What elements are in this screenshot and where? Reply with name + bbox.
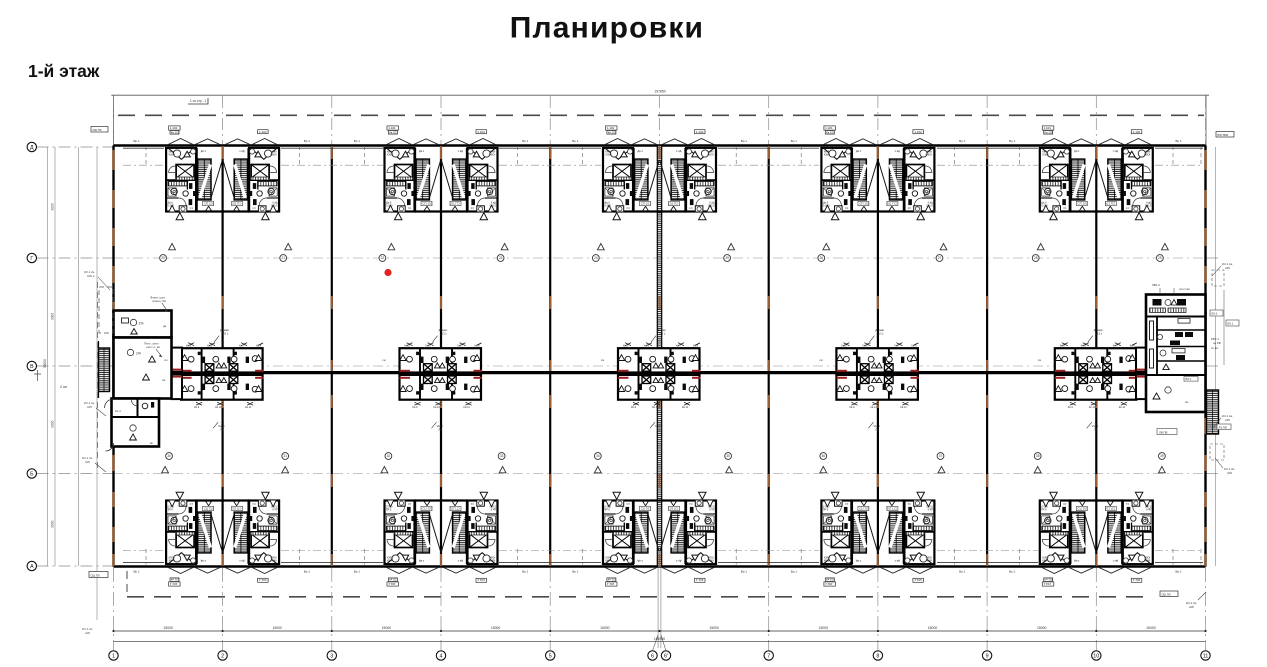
svg-text:22: 22: [381, 256, 385, 260]
svg-text:СШ.П0: СШ.П0: [93, 128, 102, 132]
svg-text:Вр.1: Вр.1: [572, 569, 579, 573]
svg-text:Вр.1: Вр.1: [572, 139, 579, 143]
svg-text:15000: 15000: [382, 626, 392, 630]
svg-text:20: 20: [161, 256, 165, 260]
svg-text:АУК: АУК: [1227, 471, 1233, 475]
svg-text:дв: дв: [163, 324, 167, 328]
svg-text:35: 35: [726, 454, 730, 458]
svg-text:В3.1: В3.1: [1228, 322, 1234, 326]
svg-text:узел уч. вв: узел уч. вв: [146, 345, 160, 349]
svg-text:Вр.1: Вр.1: [791, 569, 798, 573]
svg-text:37: 37: [939, 454, 943, 458]
svg-text:39: 39: [1160, 454, 1164, 458]
svg-text:9000: 9000: [51, 313, 55, 320]
svg-text:АУК: АУК: [85, 631, 91, 635]
svg-text:15000: 15000: [163, 626, 173, 630]
svg-text:15000: 15000: [1037, 626, 1047, 630]
svg-text:36000: 36000: [43, 359, 47, 368]
svg-text:Вр.1: Вр.1: [354, 569, 361, 573]
svg-text:помещ. 8м: помещ. 8м: [152, 299, 166, 303]
svg-text:Вр.1: Вр.1: [304, 569, 311, 573]
svg-text:15000: 15000: [600, 626, 610, 630]
svg-text:В37.В00: В37.В00: [1218, 133, 1229, 137]
svg-text:ЛЗ.ПВ: ЛЗ.ПВ: [1219, 426, 1227, 430]
svg-text:Вр.1: Вр.1: [1009, 139, 1016, 143]
svg-text:ЛВ.ПВ: ЛВ.ПВ: [1159, 430, 1167, 434]
svg-text:1%: 1%: [136, 352, 141, 356]
svg-text:38: 38: [1036, 454, 1040, 458]
svg-text:28: 28: [1034, 256, 1038, 260]
svg-text:Б: Б: [30, 472, 34, 478]
svg-text:29: 29: [1158, 256, 1162, 260]
svg-text:АУК: АУК: [1225, 418, 1231, 422]
svg-text:Вр.1: Вр.1: [1176, 139, 1183, 143]
svg-text:см: см: [1185, 400, 1188, 404]
svg-text:Вр.1: Вр.1: [522, 139, 529, 143]
svg-text:23: 23: [499, 256, 503, 260]
svg-text:1-й этаж: 1-й этаж: [28, 61, 100, 81]
svg-text:см: см: [1038, 358, 1041, 362]
svg-text:2: 2: [221, 654, 224, 660]
svg-text:ЛВ1-4: ЛВ1-4: [1152, 283, 1160, 287]
svg-text:154950: 154950: [654, 637, 665, 641]
svg-text:15000: 15000: [928, 626, 938, 630]
svg-text:це РФ: це РФ: [1213, 341, 1221, 345]
svg-text:АУК: АУК: [1225, 266, 1231, 270]
svg-text:15000: 15000: [709, 626, 719, 630]
svg-text:15000: 15000: [819, 626, 829, 630]
svg-text:10: 10: [1093, 654, 1099, 660]
svg-text:АУК: АУК: [87, 405, 93, 409]
svg-text:В3.0: В3.0: [1212, 312, 1218, 316]
svg-text:В3.1: В3.1: [1186, 377, 1192, 381]
svg-text:33: 33: [500, 454, 504, 458]
svg-text:1: 1: [112, 654, 115, 660]
svg-text:1%: 1%: [139, 322, 144, 326]
svg-text:Г: Г: [30, 256, 33, 262]
svg-text:6': 6': [664, 654, 668, 660]
svg-text:31: 31: [283, 454, 287, 458]
svg-text:5: 5: [549, 654, 552, 660]
svg-text:2 шт: 2 шт: [60, 385, 68, 389]
svg-text:Вр.1: Вр.1: [134, 569, 141, 573]
svg-text:9000: 9000: [51, 520, 55, 527]
svg-text:Вр.1: Вр.1: [741, 139, 748, 143]
svg-text:см: см: [819, 358, 822, 362]
svg-text:см: см: [382, 358, 385, 362]
svg-text:26: 26: [820, 256, 824, 260]
svg-text:СШ.П0: СШ.П0: [91, 573, 100, 577]
svg-text:15000: 15000: [1146, 626, 1156, 630]
svg-text:197850: 197850: [654, 90, 665, 94]
svg-text:9: 9: [986, 654, 989, 660]
svg-text:АУК: АУК: [85, 460, 91, 464]
svg-text:15000: 15000: [491, 626, 501, 630]
svg-text:со вв: со вв: [1211, 346, 1218, 350]
svg-text:15000: 15000: [272, 626, 282, 630]
svg-text:34: 34: [596, 454, 600, 458]
svg-text:21: 21: [281, 256, 285, 260]
svg-text:1 оч.стр - 1: 1 оч.стр - 1: [190, 99, 207, 103]
svg-text:Вр.1: Вр.1: [1176, 569, 1183, 573]
svg-text:6: 6: [651, 654, 654, 660]
svg-text:АУК: АУК: [1189, 605, 1195, 609]
svg-text:Вр.1: Вр.1: [959, 139, 966, 143]
svg-text:Вр.1: Вр.1: [522, 569, 529, 573]
svg-text:Вр.1: Вр.1: [959, 569, 966, 573]
svg-text:Вр.1: Вр.1: [1009, 569, 1016, 573]
svg-text:8: 8: [876, 654, 879, 660]
svg-text:Вр.1: Вр.1: [304, 139, 311, 143]
svg-text:4: 4: [440, 654, 443, 660]
svg-text:АУК-1: АУК-1: [87, 274, 95, 278]
svg-text:32: 32: [387, 454, 391, 458]
svg-text:Вр.1: Вр.1: [741, 569, 748, 573]
svg-text:27: 27: [938, 256, 942, 260]
svg-text:3: 3: [330, 654, 333, 660]
svg-text:9000: 9000: [51, 203, 55, 210]
svg-text:см: см: [164, 358, 167, 362]
svg-text:9000: 9000: [51, 420, 55, 427]
svg-text:11: 11: [1203, 654, 1209, 660]
svg-text:24: 24: [594, 256, 598, 260]
svg-text:СШ.П0: СШ.П0: [1162, 593, 1171, 597]
svg-text:7: 7: [767, 654, 770, 660]
svg-text:осн 1 вв: осн 1 вв: [1179, 287, 1190, 291]
svg-text:Д: Д: [30, 145, 34, 151]
svg-text:А: А: [30, 564, 34, 570]
svg-text:см: см: [162, 378, 165, 382]
svg-text:Вр.1: Вр.1: [134, 139, 141, 143]
svg-text:25: 25: [725, 256, 729, 260]
svg-text:В: В: [30, 364, 34, 370]
svg-text:Кл-1: Кл-1: [115, 409, 121, 413]
svg-text:Вр.1: Вр.1: [791, 139, 798, 143]
svg-text:Вр.1: Вр.1: [354, 139, 361, 143]
svg-text:36: 36: [822, 454, 826, 458]
svg-text:см: см: [601, 358, 604, 362]
svg-text:30: 30: [167, 454, 171, 458]
svg-text:Планировки: Планировки: [510, 12, 704, 45]
